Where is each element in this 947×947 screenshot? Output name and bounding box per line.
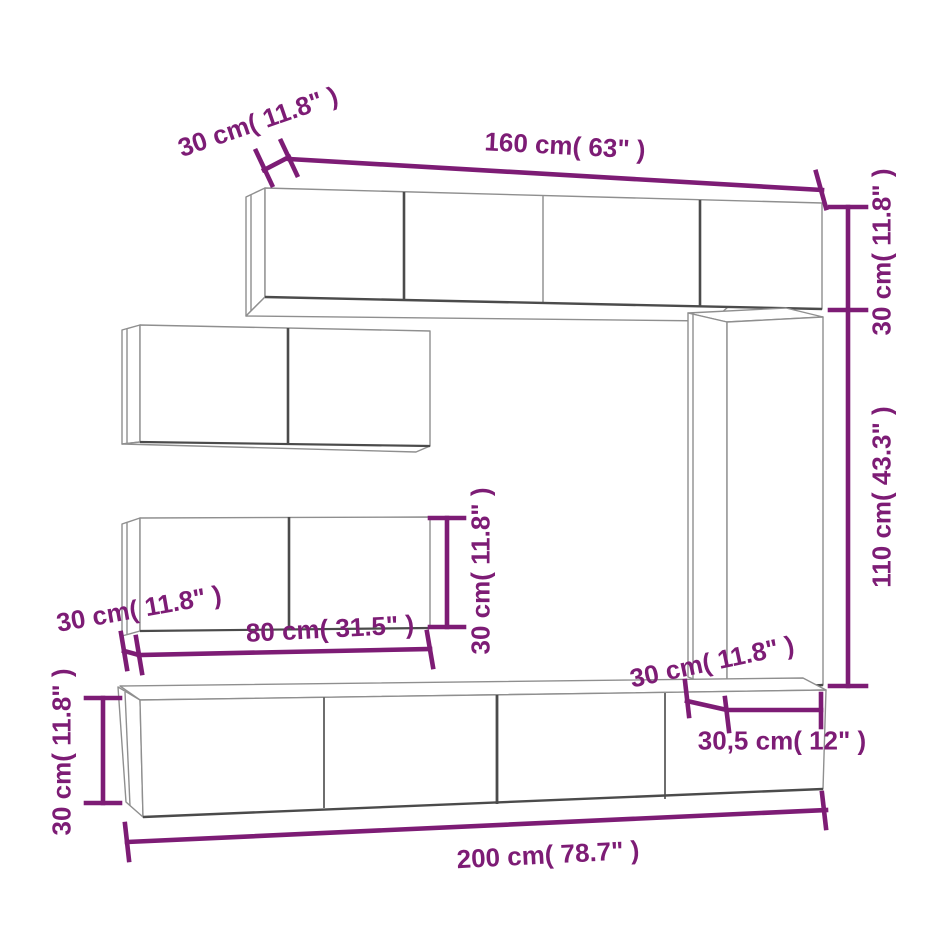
dimension-label-left-cabinet-height: 30 cm( 11.8" ) <box>466 488 497 655</box>
dimension-label-tv-bench-height: 30 cm( 11.8" ) <box>47 669 78 836</box>
tall-side-cabinet <box>688 308 823 691</box>
top-cabinet-height-dimension <box>830 207 866 310</box>
furniture-line-art <box>0 0 947 947</box>
dimension-label-top-cabinet-height: 30 cm( 11.8" ) <box>867 169 898 336</box>
top-wall-cabinet <box>246 188 822 321</box>
tall-cabinet-height-dimension <box>830 310 866 686</box>
product-dimension-image: 30 cm( 11.8" ) 160 cm( 63" ) 30 cm( 11.8… <box>0 0 947 947</box>
left-cabinet-height-dimension <box>430 518 464 627</box>
tv-bench-height-dimension <box>86 698 120 803</box>
wall-cabinet-upper-left <box>122 325 430 452</box>
dimension-label-tall-cabinet-width: 30,5 cm( 12" ) <box>698 726 866 757</box>
dimension-label-tall-cabinet-height: 110 cm( 43.3" ) <box>867 406 898 587</box>
top-cabinet-depth-dimension <box>256 141 297 185</box>
